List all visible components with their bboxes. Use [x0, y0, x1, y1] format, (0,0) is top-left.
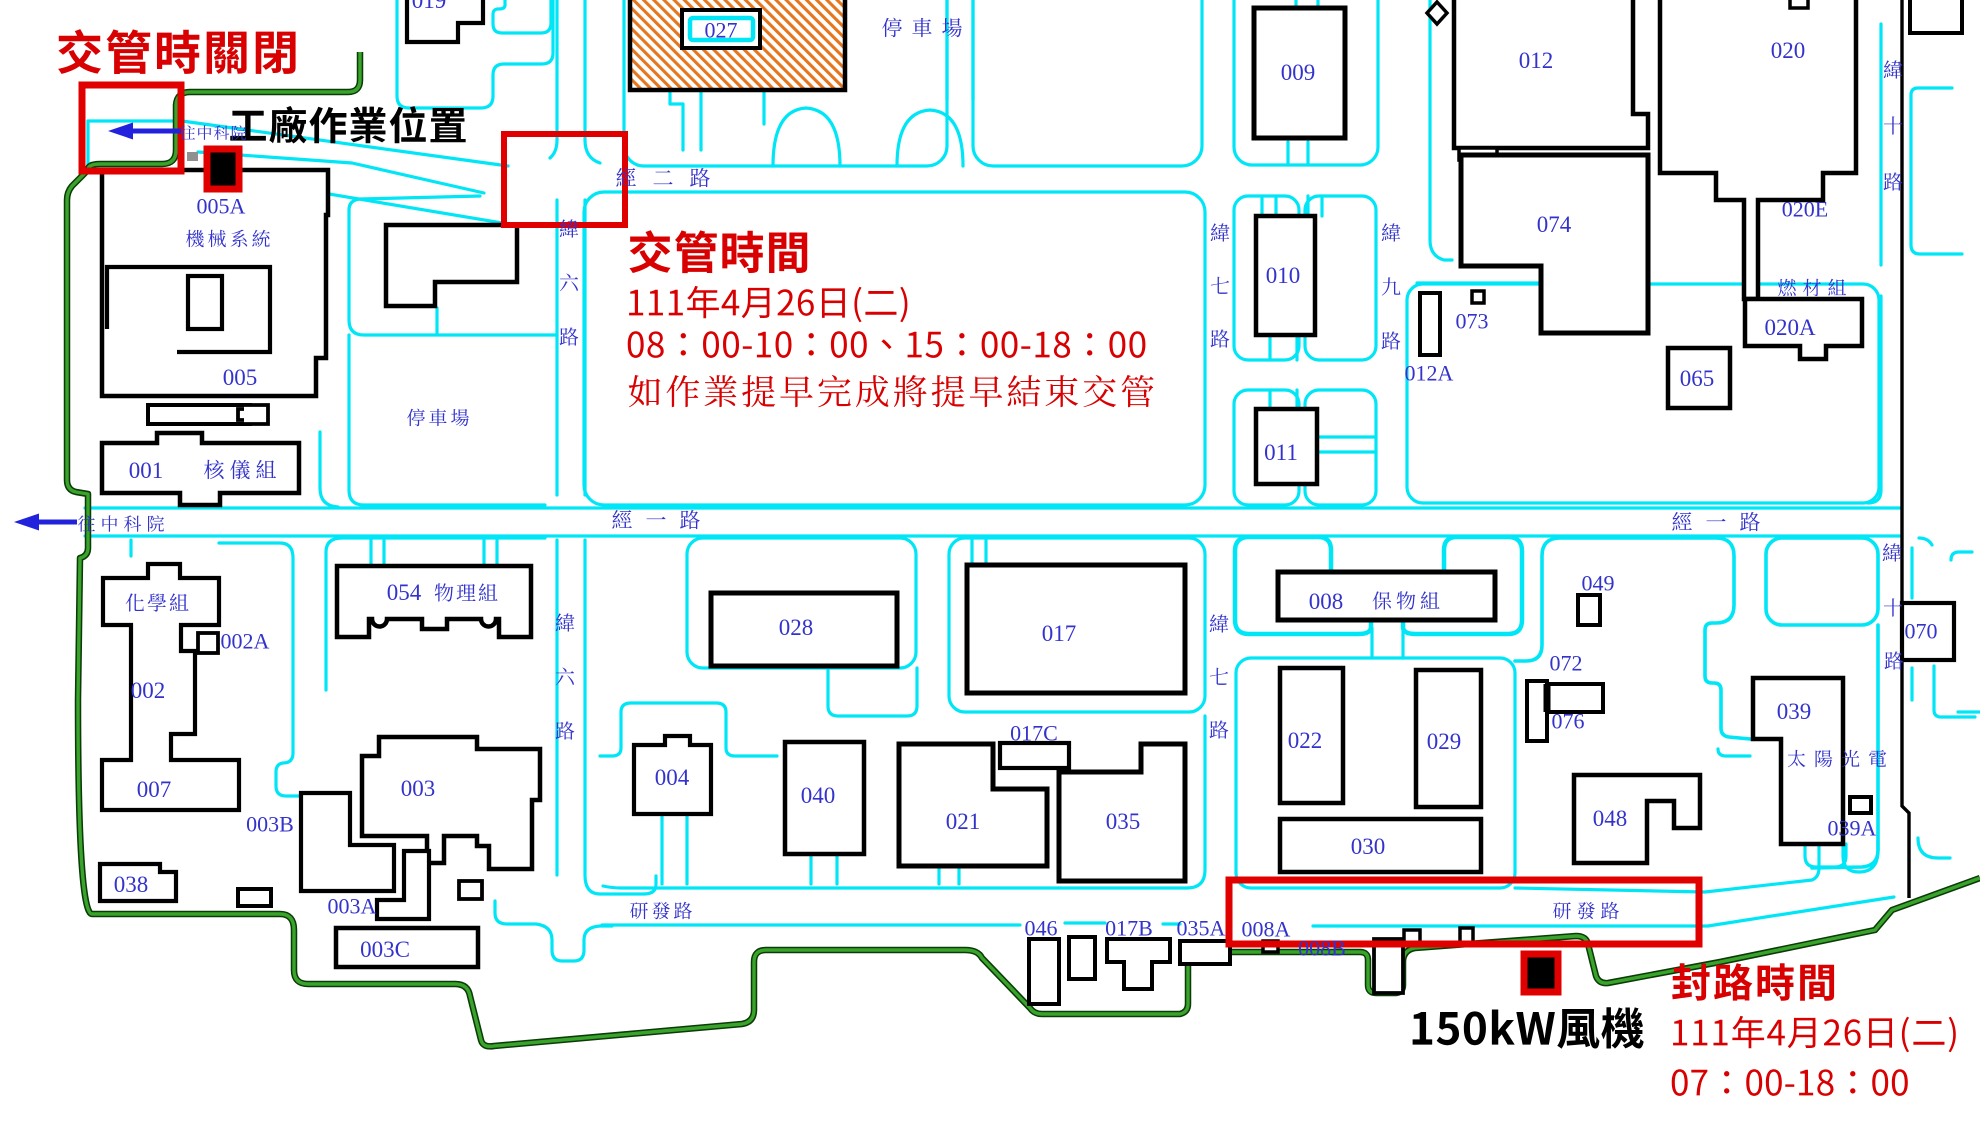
- svg-text:030: 030: [1351, 834, 1386, 859]
- svg-text:011: 011: [1264, 440, 1298, 465]
- svg-text:039A: 039A: [1828, 815, 1877, 840]
- svg-text:035: 035: [1106, 809, 1141, 834]
- svg-text:035A: 035A: [1177, 915, 1226, 940]
- svg-text:074: 074: [1537, 212, 1572, 237]
- svg-text:019: 019: [412, 0, 447, 13]
- svg-text:003B: 003B: [246, 811, 294, 836]
- svg-text:076: 076: [1552, 708, 1585, 733]
- svg-text:005: 005: [223, 365, 258, 390]
- svg-text:027: 027: [705, 17, 738, 42]
- svg-text:039: 039: [1777, 699, 1812, 724]
- svg-text:008B: 008B: [1298, 935, 1346, 960]
- svg-text:054: 054: [387, 580, 422, 605]
- svg-text:049: 049: [1582, 570, 1615, 595]
- svg-text:003A: 003A: [328, 893, 377, 918]
- svg-text:038: 038: [114, 872, 149, 897]
- svg-text:072: 072: [1550, 650, 1583, 675]
- svg-text:021: 021: [946, 809, 981, 834]
- svg-text:001: 001: [129, 458, 164, 483]
- svg-text:008: 008: [1309, 589, 1344, 614]
- svg-text:046: 046: [1025, 915, 1058, 940]
- svg-text:007: 007: [137, 777, 172, 802]
- svg-text:002A: 002A: [221, 628, 270, 653]
- svg-text:017: 017: [1042, 621, 1077, 646]
- svg-text:070: 070: [1905, 618, 1938, 643]
- svg-text:012A: 012A: [1405, 360, 1454, 385]
- svg-text:002: 002: [131, 678, 166, 703]
- svg-text:003: 003: [401, 776, 436, 801]
- svg-text:009: 009: [1281, 60, 1316, 85]
- svg-text:020A: 020A: [1764, 315, 1816, 340]
- svg-text:008A: 008A: [1242, 916, 1291, 941]
- svg-text:003C: 003C: [360, 937, 410, 962]
- svg-text:017C: 017C: [1010, 720, 1058, 745]
- svg-text:028: 028: [779, 615, 814, 640]
- svg-text:029: 029: [1427, 729, 1462, 754]
- svg-text:040: 040: [801, 783, 836, 808]
- svg-text:005A: 005A: [197, 193, 246, 218]
- svg-text:020: 020: [1771, 38, 1806, 63]
- svg-text:012: 012: [1519, 48, 1554, 73]
- svg-text:073: 073: [1456, 308, 1489, 333]
- svg-text:020E: 020E: [1782, 196, 1828, 221]
- svg-text:022: 022: [1288, 728, 1323, 753]
- svg-text:048: 048: [1593, 806, 1628, 831]
- svg-text:065: 065: [1680, 366, 1715, 391]
- svg-text:004: 004: [655, 765, 690, 790]
- svg-text:017B: 017B: [1105, 915, 1153, 940]
- svg-text:010: 010: [1266, 263, 1301, 288]
